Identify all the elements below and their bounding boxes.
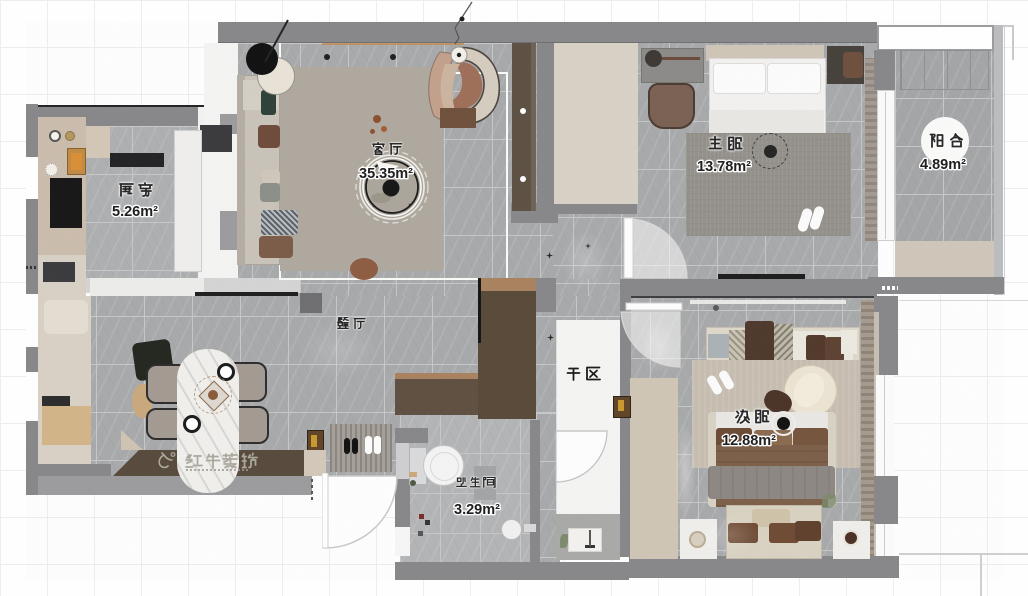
svg-text:3.29m²: 3.29m² (454, 502, 500, 518)
svg-text:5.26m²: 5.26m² (112, 204, 158, 220)
svg-text:4.89m²: 4.89m² (920, 157, 966, 173)
svg-text:13.78m²: 13.78m² (697, 159, 751, 175)
svg-text:35.35m²: 35.35m² (359, 166, 413, 182)
svg-text:12.88m²: 12.88m² (722, 433, 776, 449)
